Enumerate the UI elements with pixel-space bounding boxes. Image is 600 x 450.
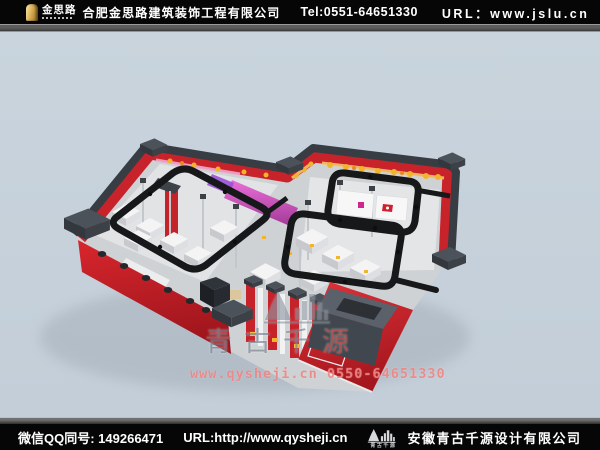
qingu-skyline-icon: [367, 426, 399, 443]
jinsilu-logo-icon: [26, 4, 38, 21]
footer-bar: 微信QQ同号: 149266471 URL:http://www.qysheji…: [0, 424, 600, 450]
header-company-name: 合肥金思路建筑装饰工程有限公司: [83, 4, 281, 21]
footer-url: URL:http://www.qysheji.cn: [183, 430, 347, 445]
brand-name: 金思路: [42, 5, 77, 16]
header-divider: [0, 24, 600, 32]
footer-divider: [0, 417, 600, 424]
render-stage: 青古千源 www.qysheji.cn 0550-64651330: [0, 32, 600, 417]
footer-qq: 微信QQ同号: 149266471: [18, 428, 163, 447]
promo-render-page: { "header": { "logo": { "brand": "金思路" }…: [0, 0, 600, 450]
footer-company-name: 安徽青古千源设计有限公司: [407, 428, 581, 447]
brand-subtext-decor: [42, 17, 72, 19]
header-brand: 金思路: [26, 4, 77, 21]
header-url: URL：www.jslu.cn: [442, 3, 589, 22]
footer-logo: 青古千源: [367, 426, 399, 449]
header-url-value: www.jslu.cn: [490, 7, 589, 21]
footer-logo-caption: 青古千源: [370, 444, 396, 449]
store-render-3d: [0, 32, 600, 417]
header-phone: Tel:0551-64651330: [301, 5, 418, 19]
header-url-label: URL：: [442, 7, 490, 21]
header-bar: 金思路 合肥金思路建筑装饰工程有限公司 Tel:0551-64651330 UR…: [0, 0, 600, 24]
